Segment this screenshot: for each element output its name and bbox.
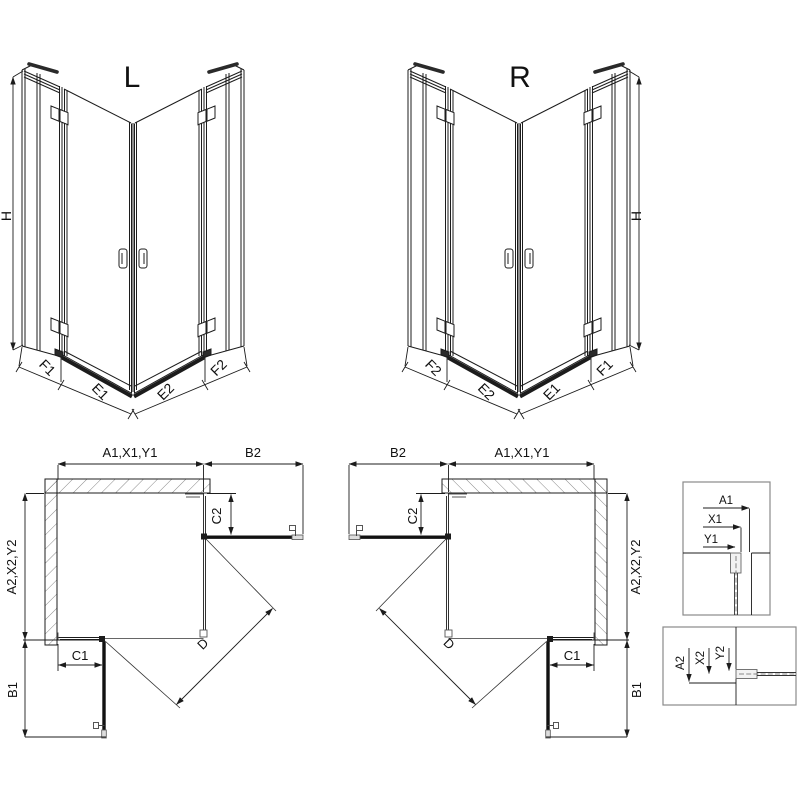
label-iso-left-title: L — [124, 61, 141, 94]
label-detail-y2: Y2 — [715, 646, 727, 660]
label-plan-right-c1: C1 — [564, 648, 581, 663]
label-iso-right-title: R — [509, 61, 531, 94]
label-detail-a2: A2 — [675, 656, 687, 670]
label-plan-right-b2: B2 — [390, 445, 406, 460]
label-plan-right-b1: B1 — [629, 682, 644, 698]
label-detail-x1: X1 — [708, 514, 722, 526]
label-plan-left-depth-group: A2,X2,Y2 — [4, 540, 19, 595]
label-detail-a1: A1 — [719, 495, 733, 507]
label-iso-right-height: H — [628, 211, 644, 221]
label-iso-left-height: H — [0, 211, 14, 221]
label-plan-left-width-group: A1,X1,Y1 — [103, 445, 158, 460]
label-detail-x2: X2 — [695, 651, 707, 665]
label-plan-right-width-group: A1,X1,Y1 — [495, 445, 550, 460]
label-plan-left-b2: B2 — [245, 445, 261, 460]
label-plan-left-d: D — [194, 635, 211, 652]
label-plan-left-b1: B1 — [5, 682, 20, 698]
label-plan-left-c2: C2 — [209, 508, 224, 525]
label-plan-left-c1: C1 — [72, 648, 89, 663]
drawing-sheet: L H F1 E1 E2 F2 R H F2 E2 E1 F1 A1,X1,Y1… — [0, 0, 800, 800]
label-detail-y1: Y1 — [704, 534, 718, 546]
label-plan-right-d: D — [441, 635, 458, 652]
technical-drawing: L H F1 E1 E2 F2 R H F2 E2 E1 F1 A1,X1,Y1… — [0, 0, 800, 800]
label-plan-right-depth-group: A2,X2,Y2 — [628, 540, 643, 595]
plan-left-view — [23, 464, 303, 738]
label-plan-right-c2: C2 — [405, 508, 420, 525]
plan-right-view — [349, 464, 629, 738]
